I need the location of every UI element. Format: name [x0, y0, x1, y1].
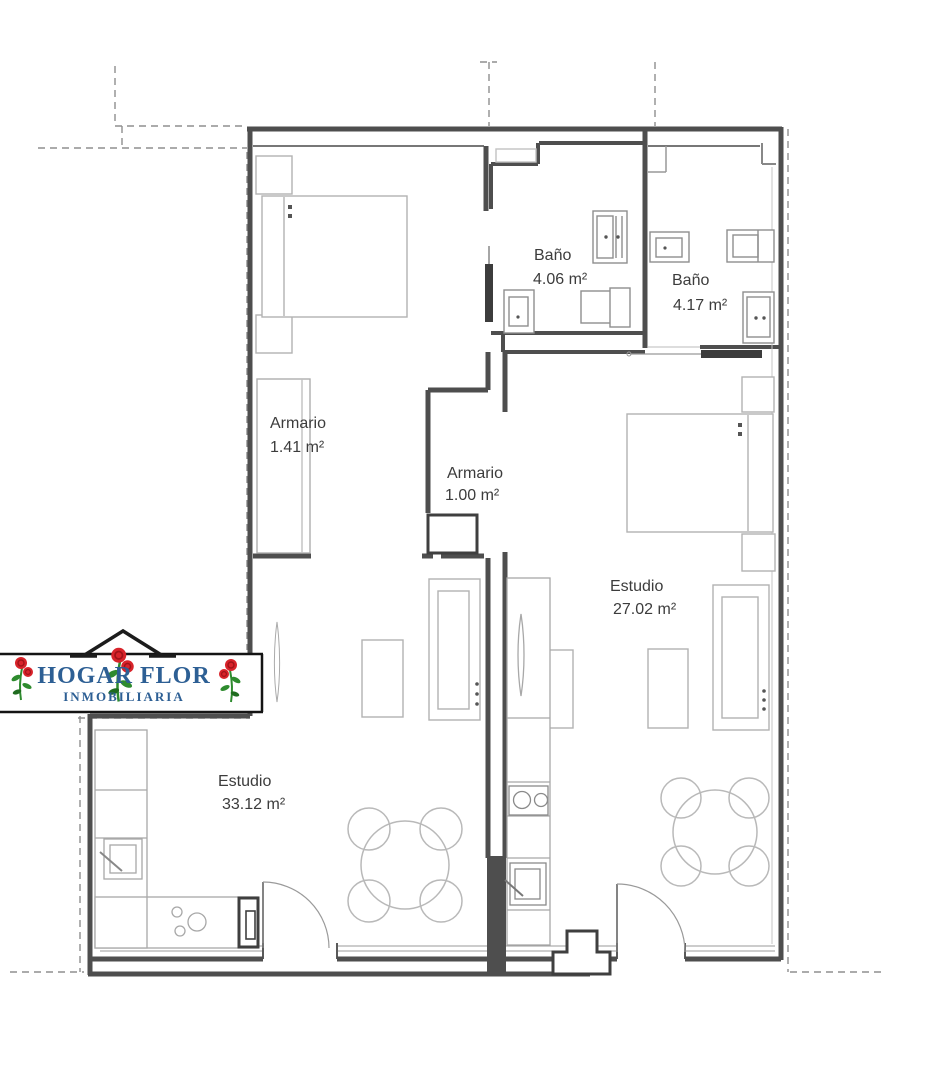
shelf — [496, 149, 536, 162]
label-armario2: Armario — [447, 465, 503, 482]
floor-plan-page: Baño 4.06 m² Baño 4.17 m² Armario 1.41 m… — [0, 0, 936, 1080]
radiator-corridor — [485, 264, 493, 322]
bathroom1-fixtures — [496, 149, 630, 333]
logo-subtitle: INMOBILIARIA — [0, 689, 248, 705]
area-bano1: 4.06 m² — [533, 271, 588, 288]
area-armario2: 1.00 m² — [445, 487, 500, 504]
area-estudio2: 33.12 m² — [222, 796, 286, 813]
label-bano2: Baño — [672, 272, 709, 289]
duct-shaft — [428, 515, 477, 553]
area-bano2: 4.17 m² — [673, 297, 728, 314]
desk-right — [648, 649, 688, 728]
wardrobe-left-group — [362, 579, 480, 720]
cooktop-right — [509, 786, 548, 815]
side-table-left — [362, 640, 403, 717]
entry-pillar — [553, 931, 610, 974]
dining-table-left — [361, 821, 449, 909]
radiator-estudio2 — [274, 622, 279, 702]
agency-logo: HOGAR FLOR INMOBILIARIA — [0, 626, 264, 716]
area-estudio1: 27.02 m² — [613, 601, 677, 618]
nightstand — [742, 534, 775, 571]
label-estudio1: Estudio — [610, 578, 663, 595]
entrance-doors — [263, 882, 685, 952]
washer — [581, 291, 611, 323]
nightstand — [256, 315, 292, 353]
nightstand — [256, 156, 292, 194]
label-estudio2: Estudio — [218, 773, 271, 790]
label-bano1: Baño — [534, 247, 571, 264]
dining-table-right — [673, 790, 757, 874]
radiator-estudio1 — [701, 350, 762, 358]
area-armario1: 1.41 m² — [270, 439, 325, 456]
floor-plan-drawing: Baño 4.06 m² Baño 4.17 m² Armario 1.41 m… — [0, 0, 936, 1080]
bed-right — [627, 414, 773, 532]
bedroom-right — [533, 377, 775, 730]
dining-right — [661, 778, 769, 886]
nightstand — [742, 377, 774, 412]
fridge — [518, 614, 524, 696]
bedroom-left — [256, 156, 407, 553]
kitchen-left — [95, 730, 258, 948]
counter-bottom — [95, 897, 258, 948]
bathroom2-fixtures — [650, 230, 774, 343]
label-armario1: Armario — [270, 415, 326, 432]
kitchen-right — [505, 578, 550, 945]
logo-title: HOGAR FLOR — [0, 663, 248, 690]
dining-left — [348, 808, 462, 922]
